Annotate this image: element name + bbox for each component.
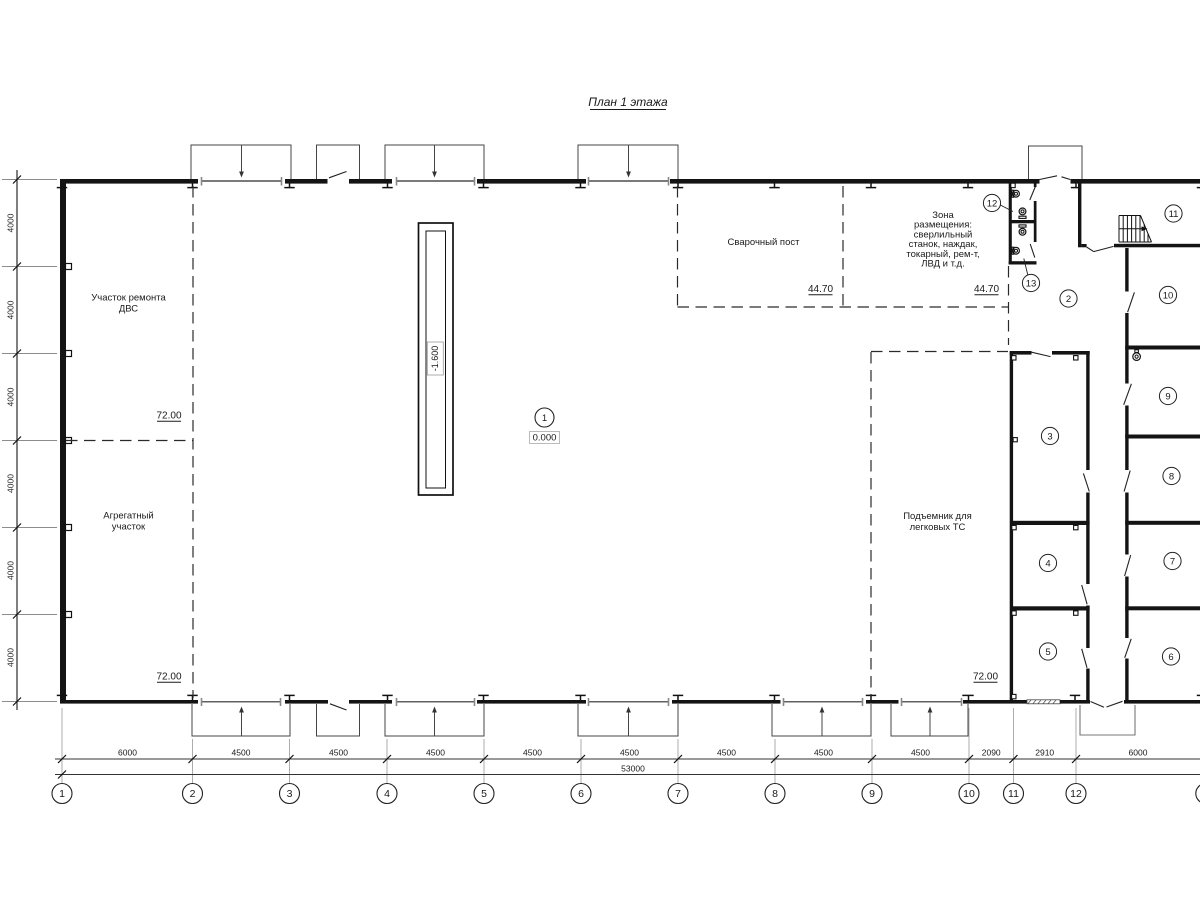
svg-text:6000: 6000: [1129, 748, 1148, 758]
svg-text:4000: 4000: [6, 213, 16, 232]
svg-text:4500: 4500: [814, 748, 833, 758]
svg-text:4000: 4000: [6, 387, 16, 406]
svg-text:4500: 4500: [911, 748, 930, 758]
svg-text:4500: 4500: [717, 748, 736, 758]
svg-text:9: 9: [1165, 392, 1170, 403]
svg-text:72.00: 72.00: [156, 672, 181, 683]
svg-text:1: 1: [59, 788, 65, 800]
svg-text:участок: участок: [112, 522, 146, 533]
svg-text:Сварочный пост: Сварочный пост: [728, 237, 801, 248]
svg-text:72.00: 72.00: [156, 411, 181, 422]
svg-text:4000: 4000: [6, 648, 16, 667]
svg-text:4000: 4000: [6, 474, 16, 493]
svg-text:-1.600: -1.600: [430, 346, 440, 372]
svg-text:12: 12: [1070, 788, 1082, 800]
svg-text:13: 13: [1026, 279, 1037, 290]
svg-text:Подъемник для: Подъемник для: [903, 511, 972, 522]
svg-text:5: 5: [1045, 647, 1050, 658]
svg-text:4000: 4000: [6, 561, 16, 580]
svg-text:8: 8: [772, 788, 778, 800]
svg-text:72.00: 72.00: [973, 672, 998, 683]
svg-text:6000: 6000: [118, 748, 137, 758]
svg-text:6: 6: [1168, 652, 1173, 663]
svg-text:10: 10: [1163, 291, 1174, 302]
svg-text:3: 3: [1047, 432, 1052, 443]
svg-text:4: 4: [1045, 559, 1050, 570]
svg-text:2: 2: [190, 788, 196, 800]
svg-text:ДВС: ДВС: [119, 304, 138, 315]
svg-text:4000: 4000: [6, 300, 16, 319]
svg-text:12: 12: [987, 199, 998, 210]
svg-text:4500: 4500: [620, 748, 639, 758]
svg-text:7: 7: [675, 788, 681, 800]
svg-text:4500: 4500: [426, 748, 445, 758]
svg-text:44.70: 44.70: [974, 284, 999, 295]
svg-text:легковых ТС: легковых ТС: [910, 522, 966, 533]
svg-text:4500: 4500: [329, 748, 348, 758]
svg-text:6: 6: [578, 788, 584, 800]
svg-text:2090: 2090: [982, 748, 1001, 758]
svg-text:8: 8: [1169, 472, 1174, 483]
svg-text:9: 9: [869, 788, 875, 800]
svg-text:11: 11: [1169, 209, 1179, 220]
svg-text:Участок ремонта: Участок ремонта: [91, 293, 166, 304]
svg-text:44.70: 44.70: [808, 284, 833, 295]
svg-text:ЛВД и т.д.: ЛВД и т.д.: [921, 259, 965, 270]
svg-text:4500: 4500: [523, 748, 542, 758]
svg-text:4500: 4500: [232, 748, 251, 758]
svg-text:7: 7: [1170, 557, 1175, 568]
svg-text:10: 10: [963, 788, 975, 800]
svg-text:11: 11: [1008, 788, 1019, 800]
svg-text:План 1 этажа: План 1 этажа: [588, 95, 668, 109]
svg-text:53000: 53000: [621, 764, 645, 774]
svg-text:Агрегатный: Агрегатный: [103, 511, 153, 522]
svg-text:2910: 2910: [1035, 748, 1054, 758]
svg-text:4: 4: [384, 788, 390, 800]
svg-text:0.000: 0.000: [533, 433, 557, 444]
svg-text:3: 3: [287, 788, 293, 800]
svg-text:5: 5: [481, 788, 487, 800]
svg-text:1: 1: [542, 413, 547, 424]
svg-text:2: 2: [1066, 294, 1071, 305]
